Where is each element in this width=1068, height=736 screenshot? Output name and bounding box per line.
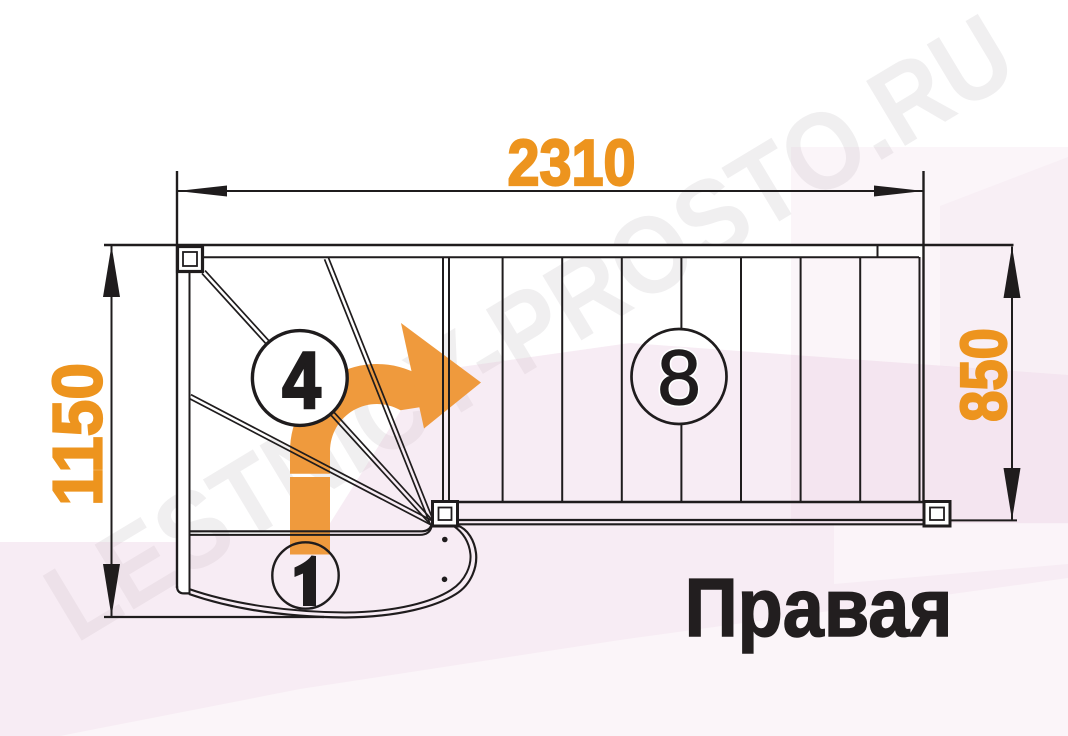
svg-text:8: 8 [657,333,700,421]
svg-text:850: 850 [947,328,1020,422]
svg-text:2310: 2310 [507,127,635,200]
svg-text:4: 4 [282,335,321,425]
svg-text:1150: 1150 [40,363,117,506]
svg-text:Правая: Правая [685,561,953,654]
